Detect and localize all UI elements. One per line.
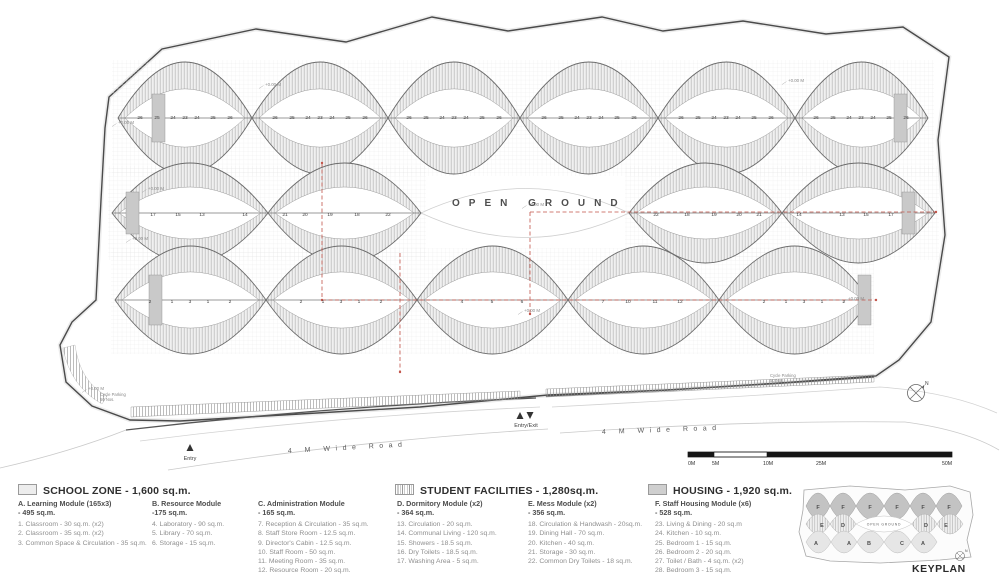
school-zone-swatch	[18, 484, 37, 495]
legend-item: 5. Library - 70 sq.m.	[152, 529, 254, 538]
legend-module-f: F. Staff Housing Module (x6) - 528 sq.m.…	[655, 500, 795, 575]
room-number: 24	[329, 115, 335, 121]
room-number: 26	[541, 115, 547, 121]
room-number: 23	[723, 115, 729, 121]
legend-item: 19. Dining Hall - 70 sq.m.	[528, 529, 656, 538]
room-number: 18	[684, 212, 690, 218]
legend-item: 26. Bedroom 2 - 20 sq.m.	[655, 548, 795, 557]
room-number: 2	[149, 299, 152, 305]
room-number: 2	[300, 299, 303, 305]
room-number: 23	[586, 115, 592, 121]
road-label-right: 4 M Wide Road	[602, 425, 722, 436]
scale-bar: 0M 5M 10M 25M 50M	[688, 452, 952, 467]
room-number: 14	[796, 212, 802, 218]
room-number: 3	[189, 299, 192, 305]
room-number: 26	[272, 115, 278, 121]
room-number: 10	[625, 299, 631, 305]
legend-item: 15. Showers - 18.5 sq.m.	[397, 539, 525, 548]
housing-title: HOUSING - 1,920 sq.m.	[673, 485, 792, 497]
room-number: 24	[463, 115, 469, 121]
module-c-items: 7. Reception & Circulation - 35 sq.m.8. …	[258, 520, 393, 575]
room-number: 25	[345, 115, 351, 121]
cycle-parking-label-left: Cycle Parking 50 Nos.	[100, 392, 127, 402]
legend-item: 1. Classroom - 30 sq.m. (x2)	[18, 520, 148, 529]
module-c-area: - 165 sq.m.	[258, 509, 393, 518]
room-number: 26	[227, 115, 233, 121]
room-number: 26	[768, 115, 774, 121]
room-number: 3	[340, 299, 343, 305]
room-number: 1	[171, 299, 174, 305]
open-ground-arcs	[421, 189, 629, 238]
room-number: 26	[362, 115, 368, 121]
room-number: 24	[574, 115, 580, 121]
road-label-left: 4 M Wide Road	[288, 441, 408, 455]
site-plan-page: { "plan": { "open_ground": "OPEN GROUND"…	[0, 0, 1000, 582]
module-b-items: 4. Laboratory - 90 sq.m.5. Library - 70 …	[152, 520, 254, 548]
room-number: 13	[839, 212, 845, 218]
legend-module-c: C. Administration Module - 165 sq.m. 7. …	[258, 500, 393, 575]
legend-item: 6. Storage - 15 sq.m.	[152, 539, 254, 548]
module-f-items: 23. Living & Dining - 20 sq.m24. Kitchen…	[655, 520, 795, 575]
keyplan-module-letter: E	[944, 523, 948, 529]
room-number: 26	[903, 115, 909, 121]
stair-block	[126, 192, 139, 234]
room-number: 20	[302, 212, 308, 218]
stair-block	[902, 192, 915, 234]
housing-swatch	[648, 484, 667, 495]
legend-module-e: E. Mess Module (x2) - 356 sq.m. 18. Circ…	[528, 500, 656, 566]
room-number: 25	[210, 115, 216, 121]
room-number: 24	[439, 115, 445, 121]
room-number: 2	[843, 299, 846, 305]
entry-label: Entry	[184, 456, 197, 462]
legend-item: 7. Reception & Circulation - 35 sq.m.	[258, 520, 393, 529]
keyplan-module-letter: B	[867, 541, 871, 547]
keyplan: FFFFFFEDDEAABCA OPEN GROUND N	[799, 486, 973, 563]
legend-module-d: D. Dormitory Module (x2) - 364 sq.m. 13.…	[397, 500, 525, 566]
keyplan-title: KEYPLAN	[912, 563, 992, 575]
module-e-area: - 356 sq.m.	[528, 509, 656, 518]
legend-item: 13. Circulation - 20 sq.m.	[397, 520, 525, 529]
legend-item: 10. Staff Room - 50 sq.m.	[258, 548, 393, 557]
keyplan-module-letter: D	[924, 523, 928, 529]
legend-item: 14. Communal Living - 120 sq.m.	[397, 529, 525, 538]
scale-tick-0m: 0M	[688, 461, 695, 467]
entry-marker: Entry	[184, 444, 197, 462]
room-number: 23	[451, 115, 457, 121]
room-number: 17	[888, 212, 894, 218]
room-number: 25	[558, 115, 564, 121]
legend-item: 8. Staff Store Room - 12.5 sq.m.	[258, 529, 393, 538]
scale-tick-50m: 50M	[942, 461, 952, 467]
room-number: 21	[282, 212, 288, 218]
cycle-parking-strips	[63, 345, 874, 417]
module-f-area: - 528 sq.m.	[655, 509, 795, 518]
room-number: 2	[229, 299, 232, 305]
legend-section-student-facilities: STUDENT FACILITIES - 1,280sq.m.	[395, 481, 598, 499]
entry-exit-marker: Entry/Exit	[514, 412, 538, 429]
legend-item: 9. Director's Cabin - 12.5 sq.m.	[258, 539, 393, 548]
room-number: 3	[803, 299, 806, 305]
module-a-items: 1. Classroom - 30 sq.m. (x2)2. Classroom…	[18, 520, 148, 548]
room-number: 24	[170, 115, 176, 121]
room-number: 25	[695, 115, 701, 121]
legend-item: 2. Classroom - 35 sq.m. (x2)	[18, 529, 148, 538]
legend-item: 11. Meeting Room - 35 sq.m.	[258, 557, 393, 566]
legend-section-housing: HOUSING - 1,920 sq.m.	[648, 481, 792, 499]
room-number: 12	[677, 299, 683, 305]
room-number: 26	[137, 115, 143, 121]
module-a-area: - 495 sq.m.	[18, 509, 148, 518]
room-number: 26	[813, 115, 819, 121]
keyplan-module-letter: E	[820, 523, 824, 529]
room-number: 23	[858, 115, 864, 121]
legend-item: 22. Common Dry Toilets - 18 sq.m.	[528, 557, 656, 566]
level-marker: +0.00 M	[148, 186, 164, 191]
room-number: 24	[305, 115, 311, 121]
room-number: 2	[380, 299, 383, 305]
room-number: 1	[785, 299, 788, 305]
room-number: 6	[521, 299, 524, 305]
legend-item: 27. Toilet / Bath - 4 sq.m. (x2)	[655, 557, 795, 566]
level-marker: +0.00 M	[848, 296, 864, 301]
module-b-area: -175 sq.m.	[152, 509, 254, 518]
room-number: 18	[354, 212, 360, 218]
legend-item: 16. Dry Toilets - 18.5 sq.m.	[397, 548, 525, 557]
room-number: 15	[863, 212, 869, 218]
room-number: 17	[150, 212, 156, 218]
room-number: 26	[496, 115, 502, 121]
student-facilities-title: STUDENT FACILITIES - 1,280sq.m.	[420, 485, 598, 497]
module-d-area: - 364 sq.m.	[397, 509, 525, 518]
legend-item: 12. Resource Room - 20 sq.m.	[258, 566, 393, 575]
room-number: 1	[358, 299, 361, 305]
room-number: 22	[385, 212, 391, 218]
svg-text:50 Nos.: 50 Nos.	[770, 378, 784, 383]
north-label: N	[925, 381, 929, 387]
room-number: 1	[821, 299, 824, 305]
room-number: 7	[602, 299, 605, 305]
legend-item: 4. Laboratory - 90 sq.m.	[152, 520, 254, 529]
room-number: 15	[175, 212, 181, 218]
room-number: 13	[199, 212, 205, 218]
room-number: 26	[678, 115, 684, 121]
scale-tick-10m: 10M	[763, 461, 773, 467]
room-number: 25	[830, 115, 836, 121]
room-number: 5	[491, 299, 494, 305]
legend-item: 17. Washing Area - 5 sq.m.	[397, 557, 525, 566]
legend-item: 24. Kitchen - 10 sq.m.	[655, 529, 795, 538]
legend-section-school-zone: SCHOOL ZONE - 1,600 sq.m.	[18, 481, 191, 499]
room-number: 25	[423, 115, 429, 121]
room-number: 24	[711, 115, 717, 121]
room-number: 20	[736, 212, 742, 218]
room-number: 14	[242, 212, 248, 218]
legend-item: 23. Living & Dining - 20 sq.m	[655, 520, 795, 529]
legend-item: 18. Circulation & Handwash - 20sq.m.	[528, 520, 656, 529]
room-number: 26	[406, 115, 412, 121]
module-d-items: 13. Circulation - 20 sq.m.14. Communal L…	[397, 520, 525, 566]
room-number: 24	[846, 115, 852, 121]
keyplan-module-letter: A	[814, 541, 818, 547]
open-ground-label: OPEN GROUND	[452, 198, 627, 209]
level-marker: +0.00 M	[118, 120, 134, 125]
room-number: 25	[289, 115, 295, 121]
legend-item: 20. Kitchen - 40 sq.m.	[528, 539, 656, 548]
room-number: 19	[711, 212, 717, 218]
room-number: 22	[653, 212, 659, 218]
room-number: 25	[154, 115, 160, 121]
module-e-items: 18. Circulation & Handwash - 20sq.m.19. …	[528, 520, 656, 566]
room-number: 25	[886, 115, 892, 121]
level-marker: +0.00 M	[132, 236, 148, 241]
room-number: 25	[751, 115, 757, 121]
room-number: 2	[763, 299, 766, 305]
legend-item: 3. Common Space & Circulation - 35 sq.m.	[18, 539, 148, 548]
room-number: 23	[182, 115, 188, 121]
room-number: 24	[598, 115, 604, 121]
entry-exit-label: Entry/Exit	[514, 423, 538, 429]
legend-module-b: B. Resource Module -175 sq.m. 4. Laborat…	[152, 500, 254, 548]
level-marker: +0.00 M	[265, 82, 281, 87]
svg-text:50 Nos.: 50 Nos.	[100, 397, 114, 402]
room-number: 24	[735, 115, 741, 121]
room-number: 19	[327, 212, 333, 218]
room-number: 24	[194, 115, 200, 121]
room-number: 25	[614, 115, 620, 121]
room-number: 1	[207, 299, 210, 305]
legend-item: 21. Storage - 30 sq.m.	[528, 548, 656, 557]
room-number: 21	[756, 212, 762, 218]
legend-module-a: A. Learning Module (165x3) - 495 sq.m. 1…	[18, 500, 148, 548]
level-marker: +0.00 M	[88, 386, 104, 391]
room-number: 23	[317, 115, 323, 121]
keyplan-open-ground-label: OPEN GROUND	[867, 523, 901, 527]
legend-item: 25. Bedroom 1 - 15 sq.m.	[655, 539, 795, 548]
room-number: 11	[653, 299, 658, 305]
room-number: 1	[322, 299, 325, 305]
level-marker: +0.00 M	[788, 78, 804, 83]
scale-tick-25m: 25M	[816, 461, 826, 467]
student-facilities-swatch	[395, 484, 414, 495]
keyplan-module-letter: D	[841, 523, 845, 529]
room-number: 4	[461, 299, 464, 305]
keyplan-module-letter: C	[900, 541, 904, 547]
room-number: 24	[870, 115, 876, 121]
keyplan-module-letter: A	[921, 541, 925, 547]
level-marker: +0.00 M	[524, 308, 540, 313]
room-number: 25	[479, 115, 485, 121]
school-zone-title: SCHOOL ZONE - 1,600 sq.m.	[43, 485, 191, 497]
scale-tick-5m: 5M	[712, 461, 719, 467]
keyplan-module-letter: A	[847, 541, 851, 547]
room-number: 26	[631, 115, 637, 121]
legend-item: 28. Bedroom 3 - 15 sq.m.	[655, 566, 795, 575]
